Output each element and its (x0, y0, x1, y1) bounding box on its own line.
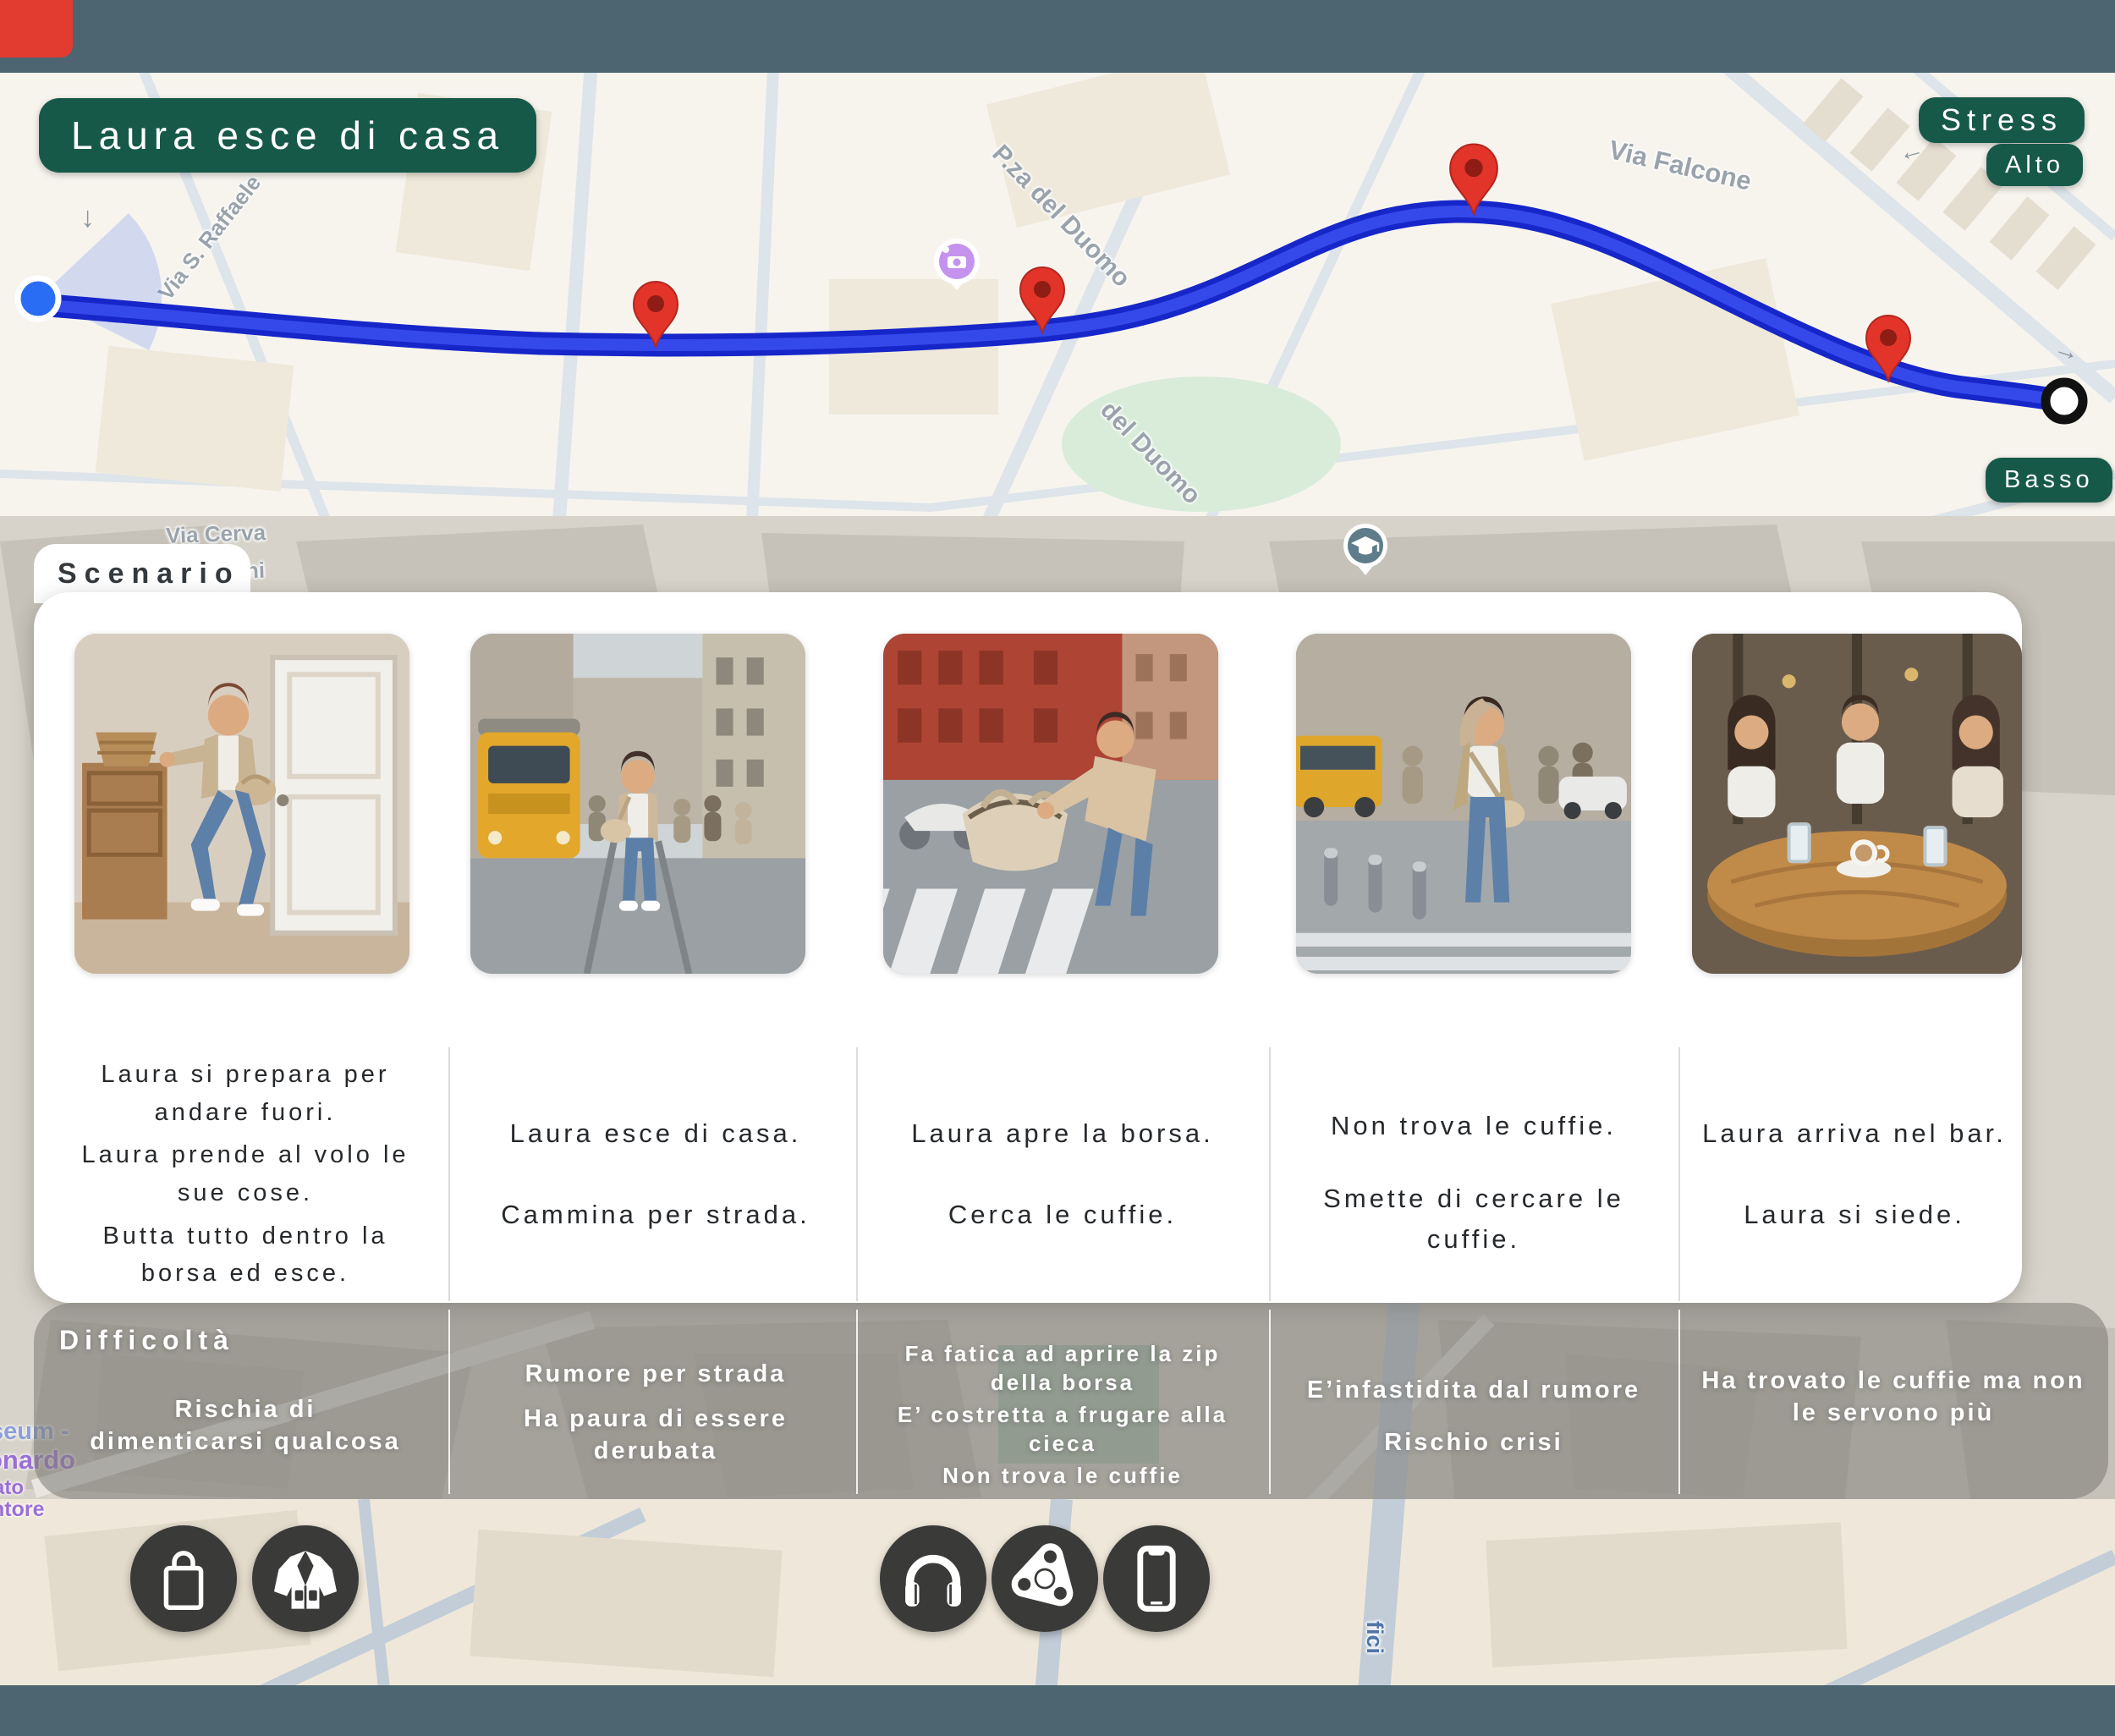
jacket-item-button[interactable] (252, 1525, 359, 1632)
scene-photo-3 (883, 634, 1218, 974)
corner-red-shape (0, 0, 73, 58)
caption-text: Butta tutto dentro la borsa ed esce. (59, 1217, 431, 1294)
cafe-table-friends-photo (1692, 634, 2022, 974)
poi-label-ntore-cut: ntore (0, 1497, 45, 1522)
difficulty-text: Rumore per strada (486, 1359, 825, 1391)
scene-title-text: Laura esce di casa (71, 113, 504, 158)
difficulty-column-1: Rischia di dimenticarsi qualcosa (85, 1367, 406, 1486)
stress-legend-badge: Stress (1919, 97, 2085, 143)
difficulty-text: Fa fatica ad aprire la zip della borsa (873, 1340, 1252, 1398)
difficulty-divider-1 (448, 1310, 450, 1494)
caption-text: Non trova le cuffie. (1286, 1106, 1662, 1146)
caption-column-4: Non trova le cuffie. Smette di cercare l… (1286, 1073, 1662, 1293)
caption-column-5: Laura arriva nel bar. Laura si siede. (1695, 1073, 2013, 1276)
scene-photo-1 (74, 634, 409, 974)
difficulty-divider-3 (1269, 1310, 1271, 1494)
headphones-item-button[interactable] (880, 1525, 986, 1632)
bag-icon (143, 1538, 224, 1619)
caption-text: Laura si prepara per andare fuori. (59, 1056, 431, 1132)
difficulty-column-3: Fa fatica ad aprire la zip della borsa E… (873, 1337, 1252, 1494)
headphones-icon (893, 1538, 974, 1619)
university-poi-icon[interactable] (1343, 524, 1387, 575)
difficulty-column-4: E’infastidita dal rumore Rischio crisi (1303, 1354, 1645, 1481)
scene-photo-5 (1692, 634, 2022, 974)
smartphone-icon (1116, 1538, 1197, 1619)
difficulty-divider-4 (1678, 1310, 1680, 1494)
caption-divider-3 (1269, 1047, 1271, 1301)
difficulty-text: E’ costretta a frugare alla cieca (873, 1401, 1252, 1459)
street-with-tram-photo (470, 634, 805, 974)
scene-photo-2 (470, 634, 805, 974)
caption-column-1: Laura si prepara per andare fuori. Laura… (59, 1051, 431, 1298)
caption-column-3: Laura apre la borsa. Cerca le cuffie. (876, 1073, 1250, 1276)
fidget-spinner-icon (1004, 1538, 1085, 1619)
route-end-marker (2046, 382, 2083, 420)
stress-legend-text: Stress (1941, 102, 2063, 138)
route-start-marker (18, 278, 58, 319)
scene-photo-4 (1296, 634, 1631, 974)
difficulty-divider-2 (856, 1310, 858, 1494)
stress-low-badge: Basso (1986, 458, 2112, 503)
difficulty-title: Difficoltà (59, 1325, 234, 1356)
stress-high-text: Alto (2005, 151, 2064, 179)
stress-low-text: Basso (2004, 466, 2094, 494)
difficulty-text: Rischia di dimenticarsi qualcosa (85, 1394, 406, 1458)
street-label-fici: fici (1361, 1621, 1387, 1654)
storyboard-screen: Via S. Raffaele P.za del Duomo del Duomo… (0, 0, 2115, 1736)
fidget-spinner-item-button[interactable] (992, 1525, 1098, 1632)
laura-prepares-at-home-photo (74, 634, 409, 974)
difficulty-column-2: Rumore per strada Ha paura di essere der… (486, 1345, 825, 1481)
difficulty-column-5: Ha trovato le cuffie ma non le servono p… (1695, 1347, 2091, 1448)
bottom-bar (0, 1685, 2115, 1736)
opens-handbag-crosswalk-photo (883, 634, 1218, 974)
caption-text: Laura prende al volo le sue cose. (59, 1136, 431, 1212)
top-bar (0, 0, 2115, 73)
poi-label-ato-cut: ato (0, 1476, 24, 1500)
scenario-title: Scenario (58, 558, 240, 591)
stress-high-badge: Alto (1986, 144, 2083, 186)
caption-column-2: Laura esce di casa. Cammina per strada. (470, 1073, 842, 1276)
route-layer (0, 0, 2115, 592)
scene-title-badge: Laura esce di casa (39, 98, 536, 173)
camera-poi-icon[interactable] (934, 239, 980, 290)
jacket-icon (265, 1538, 346, 1619)
difficulty-text: Ha paura di essere derubata (486, 1404, 825, 1467)
caption-text: Laura esce di casa. (470, 1113, 842, 1154)
caption-text: Cammina per strada. (470, 1195, 842, 1235)
hand-on-head-street-photo (1296, 634, 1631, 974)
difficulty-text: Non trova le cuffie (873, 1462, 1252, 1491)
caption-text: Laura apre la borsa. (876, 1113, 1250, 1154)
caption-text: Laura si siede. (1695, 1195, 2013, 1235)
bag-item-button[interactable] (130, 1525, 237, 1632)
caption-text: Laura arriva nel bar. (1695, 1113, 2013, 1154)
caption-divider-4 (1678, 1047, 1680, 1301)
caption-text: Smette di cercare le cuffie. (1286, 1178, 1662, 1260)
caption-text: Cerca le cuffie. (876, 1195, 1250, 1235)
smartphone-item-button[interactable] (1103, 1525, 1210, 1632)
difficulty-text: E’infastidita dal rumore (1303, 1375, 1645, 1407)
difficulty-text: Ha trovato le cuffie ma non le servono p… (1695, 1365, 2091, 1429)
caption-divider-1 (448, 1047, 450, 1301)
caption-divider-2 (856, 1047, 858, 1301)
difficulty-text: Rischio crisi (1303, 1427, 1645, 1459)
